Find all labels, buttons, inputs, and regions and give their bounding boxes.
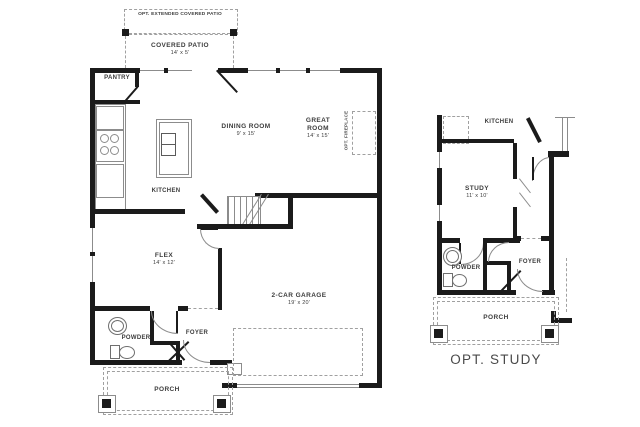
wall-segment [377,68,382,388]
island-sink-basin [161,144,176,156]
foyer-label: FOYER [186,330,208,337]
great-room-name-2: ROOM [306,125,330,133]
door-opening [192,68,218,73]
patio-door-leaf [216,70,238,93]
window [437,152,442,168]
pantry-label: PANTRY [104,75,130,82]
wall-segment [437,238,460,243]
great-room-name-1: GREAT [306,117,330,125]
wall-segment [288,198,293,229]
wall-segment [218,248,222,310]
great-room-label: GREAT ROOM 14' x 15' [306,117,330,139]
stair-rail-cap [555,117,575,118]
opt-porch-column-core [434,329,443,338]
garage-door-line [237,384,359,385]
opt-toilet-bowl [452,274,467,287]
opt-kitchen-label: KITCHEN [485,119,514,126]
window [437,205,442,221]
covered-patio-dims: 14' x 5' [151,50,209,57]
porch-column-core [217,399,226,408]
wall-segment [549,157,554,295]
angled-wall [526,117,542,143]
opening-break-line [519,178,531,193]
stair-rail-line [567,118,568,152]
wall-segment [135,73,139,87]
cased-opening [521,238,541,239]
powder-text: POWDER [122,335,151,342]
patio-column [122,29,129,36]
wall-segment [541,236,554,241]
wall-segment [513,236,521,241]
pantry-text: PANTRY [104,75,130,82]
opt-powder-text: POWDER [452,265,481,272]
cooktop-burner [110,134,119,143]
porch-text: PORCH [154,386,179,394]
opt-study-caption: OPT. STUDY [450,352,542,367]
stair-door-arc [532,157,550,181]
opt-kitchen-text: KITCHEN [485,119,514,126]
window [90,256,95,282]
window [90,228,95,252]
wall-segment [483,243,487,293]
flex-dims: 14' x 12' [153,260,175,267]
covered-patio-label: COVERED PATIO 14' x 5' [151,42,209,56]
wall-segment [507,261,511,292]
cooktop-burner [100,146,109,155]
flex-label: FLEX 14' x 12' [153,252,175,266]
kitchen-label: KITCHEN [152,188,181,195]
opt-extended-patio-label: OPT. EXTENDED COVERED PATIO [136,12,224,18]
opt-powder-sink-basin [446,250,459,263]
opt-porch-label: PORCH [483,314,508,322]
wall-segment [442,139,514,143]
patio-edge-line [129,33,230,34]
garage-dims: 19' x 20' [272,300,327,307]
window [248,68,340,73]
stair-door-leaf [532,157,534,180]
wall-segment [90,360,232,365]
garage-label: 2-CAR GARAGE 19' x 20' [272,292,327,306]
patio-edge-line [125,36,126,68]
opt-powder-door-arc [461,243,484,265]
porch-label: PORCH [154,386,179,394]
dining-room-dims: 9' x 15' [221,131,270,138]
opt-extended-patio-text: OPT. EXTENDED COVERED PATIO [138,12,222,18]
wall-segment [513,143,517,179]
cased-opening [188,308,218,309]
cooktop-burner [100,134,109,143]
flex-door-arc [200,229,219,249]
kitchen-text: KITCHEN [152,188,181,195]
stair-rail-line [562,118,563,152]
covered-patio-name: COVERED PATIO [151,42,209,50]
flex-name: FLEX [153,252,175,260]
patio-column [230,29,237,36]
opt-foyer-text: FOYER [519,259,541,266]
window-mullion [276,68,280,73]
patio-edge-line [233,36,234,68]
cooktop-burner [110,146,119,155]
floor-plan-canvas: OPT. EXTENDED COVERED PATIO COVERED PATI… [0,0,640,427]
wall-segment [95,209,185,214]
opt-fireplace-label: OPT. FIREPLACE [344,108,349,154]
toilet-bowl [119,346,135,359]
opt-powder-label: POWDER [452,265,481,272]
opt-porch-text: PORCH [483,314,508,322]
opening-break-line [519,192,531,207]
dashed-line [566,258,567,312]
powder-door-arc [151,311,178,334]
opt-fireplace-outline [352,111,376,155]
powder-label: POWDER [122,335,151,342]
dining-room-label: DINING ROOM 9' x 15' [221,123,270,137]
study-label: STUDY 11' x 10' [465,185,489,199]
wall-segment [95,306,150,311]
foyer-text: FOYER [186,330,208,337]
powder-sink-basin [111,320,124,332]
window-mullion [164,68,168,73]
opt-foyer-label: FOYER [519,259,541,266]
study-dims: 11' x 10' [465,193,489,200]
wall-segment [178,306,188,311]
porch-column-core [102,399,111,408]
garage-name: 2-CAR GARAGE [272,292,327,300]
window-mullion [306,68,310,73]
wall-segment [255,193,382,198]
opt-porch-column-core [545,329,554,338]
garage-dashed-area [233,328,363,376]
garage-door-line [237,387,359,388]
opt-front-door-arc [517,269,543,292]
opt-closet-door-arc [488,242,509,262]
dishwasher [96,106,124,130]
refrigerator [96,164,124,198]
dining-room-name: DINING ROOM [221,123,270,131]
study-name: STUDY [465,185,489,193]
angled-wall [200,193,219,214]
great-room-dims: 14' x 15' [306,133,330,140]
